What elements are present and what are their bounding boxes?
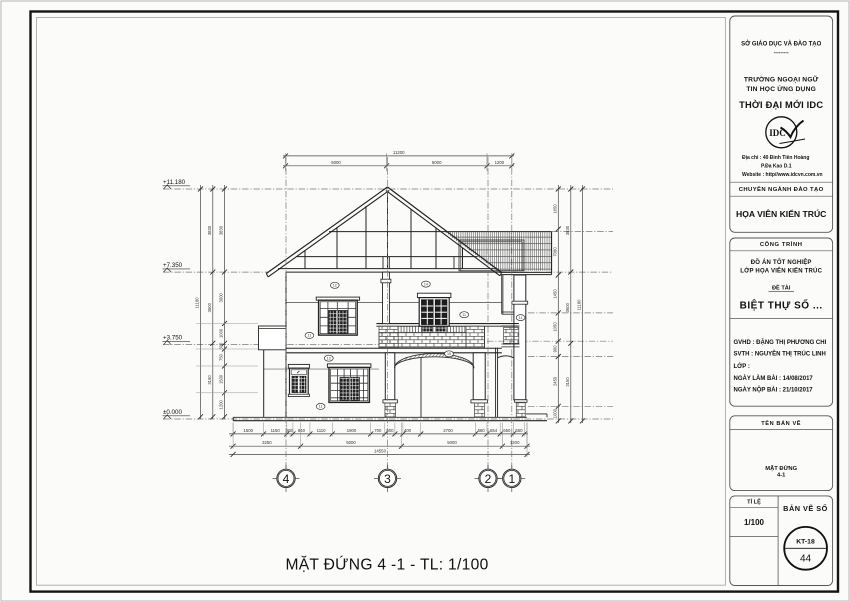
svg-text:SỞ GIÁO DỤC VÀ ĐÀO TẠO: SỞ GIÁO DỤC VÀ ĐÀO TẠO bbox=[741, 41, 821, 48]
svg-text:1900: 1900 bbox=[347, 428, 357, 433]
svg-text:300: 300 bbox=[219, 342, 224, 350]
svg-text:BIỆT THỰ SỐ ...: BIỆT THỰ SỐ ... bbox=[740, 297, 823, 311]
svg-text:11200: 11200 bbox=[393, 150, 405, 155]
svg-text:1450: 1450 bbox=[552, 289, 557, 299]
svg-text:650: 650 bbox=[503, 428, 511, 433]
svg-text:3830: 3830 bbox=[219, 225, 224, 235]
svg-text:ĐỀ TÀI: ĐỀ TÀI bbox=[772, 285, 791, 292]
svg-text:BẢN VẼ SỐ: BẢN VẼ SỐ bbox=[783, 503, 828, 513]
svg-text:700: 700 bbox=[374, 428, 382, 433]
svg-text:P.Đa Kao D.1: P.Đa Kao D.1 bbox=[761, 163, 792, 169]
svg-text:5000: 5000 bbox=[346, 440, 356, 445]
svg-text:---------: --------- bbox=[774, 50, 789, 56]
svg-text:THỜI ĐẠI MỚI IDC: THỜI ĐẠI MỚI IDC bbox=[739, 99, 823, 110]
svg-text:CHUYÊN NGÀNH ĐÀO TẠO: CHUYÊN NGÀNH ĐÀO TẠO bbox=[739, 185, 824, 193]
svg-text:NGÀY LÀM BÀI : 14/08/2017: NGÀY LÀM BÀI : 14/08/2017 bbox=[734, 375, 814, 382]
svg-text:1500: 1500 bbox=[244, 428, 254, 433]
svg-text:3830: 3830 bbox=[565, 225, 570, 235]
svg-text:Địa chỉ : 40 Đinh Tiên Hoàng: Địa chỉ : 40 Đinh Tiên Hoàng bbox=[742, 155, 809, 161]
svg-text:11180: 11180 bbox=[576, 299, 581, 311]
svg-text:+7.350: +7.350 bbox=[163, 262, 183, 269]
svg-text:+11.180: +11.180 bbox=[163, 179, 186, 186]
svg-text:±0.000: ±0.000 bbox=[163, 409, 182, 416]
svg-text:NGÀY NỘP BÀI : 21/10/2017: NGÀY NỘP BÀI : 21/10/2017 bbox=[734, 386, 814, 394]
svg-text:TÊN BẢN VẼ: TÊN BẢN VẼ bbox=[761, 419, 801, 427]
svg-text:CÔNG TRÌNH: CÔNG TRÌNH bbox=[760, 240, 803, 248]
svg-text:TỈ LỆ: TỈ LỆ bbox=[747, 497, 761, 505]
svg-text:14: 14 bbox=[424, 282, 428, 286]
svg-text:MẶT ĐỨNG 4 -1 - TL: 1/100: MẶT ĐỨNG 4 -1 - TL: 1/100 bbox=[285, 555, 488, 574]
svg-text:5000: 5000 bbox=[447, 440, 457, 445]
svg-text:11: 11 bbox=[319, 405, 323, 409]
svg-text:3600: 3600 bbox=[207, 302, 212, 312]
svg-text:1000: 1000 bbox=[552, 408, 557, 418]
svg-text:7080: 7080 bbox=[552, 247, 557, 257]
svg-text:4: 4 bbox=[283, 472, 290, 486]
svg-text:TIN HỌC ỨNG DỤNG: TIN HỌC ỨNG DỤNG bbox=[746, 84, 816, 93]
svg-text:15: 15 bbox=[447, 352, 451, 356]
svg-text:GVHD : ĐẶNG THỊ PHƯƠNG CHI: GVHD : ĐẶNG THỊ PHƯƠNG CHI bbox=[734, 339, 827, 346]
svg-text:11: 11 bbox=[308, 334, 312, 338]
svg-text:11: 11 bbox=[462, 313, 466, 317]
svg-text:3: 3 bbox=[384, 472, 391, 486]
svg-text:13: 13 bbox=[327, 357, 331, 361]
svg-text:TRƯỜNG NGOẠI NGỮ: TRƯỜNG NGOẠI NGỮ bbox=[744, 74, 819, 83]
svg-text:1/100: 1/100 bbox=[744, 518, 765, 527]
svg-text:11: 11 bbox=[519, 316, 523, 320]
svg-text:2: 2 bbox=[485, 472, 492, 486]
svg-text:3250: 3250 bbox=[262, 440, 272, 445]
svg-text:580: 580 bbox=[478, 428, 486, 433]
svg-text:3830: 3830 bbox=[207, 225, 212, 235]
svg-text:+3.750: +3.750 bbox=[163, 335, 183, 342]
svg-text:14550: 14550 bbox=[374, 448, 387, 453]
svg-text:1200: 1200 bbox=[219, 399, 224, 409]
svg-text:LỚP HỌA VIÊN KIẾN TRÚC: LỚP HỌA VIÊN KIẾN TRÚC bbox=[740, 267, 822, 275]
svg-text:4-1: 4-1 bbox=[777, 472, 786, 478]
svg-text:ĐỒ ÁN TỐT NGHIỆP: ĐỒ ÁN TỐT NGHIỆP bbox=[751, 258, 812, 266]
svg-text:44: 44 bbox=[800, 553, 812, 564]
svg-text:1110: 1110 bbox=[317, 428, 327, 433]
svg-text:3150: 3150 bbox=[565, 377, 570, 387]
svg-text:1050: 1050 bbox=[552, 322, 557, 332]
svg-text:1650: 1650 bbox=[552, 204, 557, 214]
svg-text:1000: 1000 bbox=[219, 328, 224, 338]
svg-text:12: 12 bbox=[333, 284, 337, 288]
svg-text:654: 654 bbox=[490, 428, 498, 433]
svg-text:550: 550 bbox=[515, 428, 523, 433]
svg-text:5000: 5000 bbox=[432, 160, 442, 165]
svg-text:750: 750 bbox=[219, 353, 224, 361]
svg-text:1150: 1150 bbox=[271, 428, 281, 433]
svg-text:3600: 3600 bbox=[565, 302, 570, 312]
svg-text:5000: 5000 bbox=[331, 160, 341, 165]
svg-text:1500: 1500 bbox=[219, 374, 224, 384]
svg-text:1: 1 bbox=[508, 472, 515, 486]
svg-text:MẶT ĐỨNG: MẶT ĐỨNG bbox=[765, 465, 797, 472]
svg-text:900: 900 bbox=[552, 345, 557, 353]
svg-text:840: 840 bbox=[298, 428, 306, 433]
svg-text:2450: 2450 bbox=[552, 376, 557, 386]
svg-text:HỌA VIÊN KIẾN TRÚC: HỌA VIÊN KIẾN TRÚC bbox=[736, 208, 826, 219]
svg-text:11180: 11180 bbox=[195, 297, 200, 309]
svg-text:1200: 1200 bbox=[510, 440, 520, 445]
svg-text:Website : http//www.idcvn.com.: Website : http//www.idcvn.com.vn bbox=[742, 172, 823, 178]
svg-text:3150: 3150 bbox=[207, 375, 212, 385]
svg-text:KT-18: KT-18 bbox=[796, 539, 815, 546]
svg-text:SVTH : NGUYỄN THỊ TRÚC LINH: SVTH : NGUYỄN THỊ TRÚC LINH bbox=[734, 351, 826, 358]
svg-text:1200: 1200 bbox=[495, 160, 505, 165]
svg-text:400: 400 bbox=[404, 428, 412, 433]
svg-text:2700: 2700 bbox=[443, 428, 453, 433]
svg-text:LỚP :: LỚP : bbox=[734, 362, 750, 370]
svg-text:3000: 3000 bbox=[219, 292, 224, 302]
